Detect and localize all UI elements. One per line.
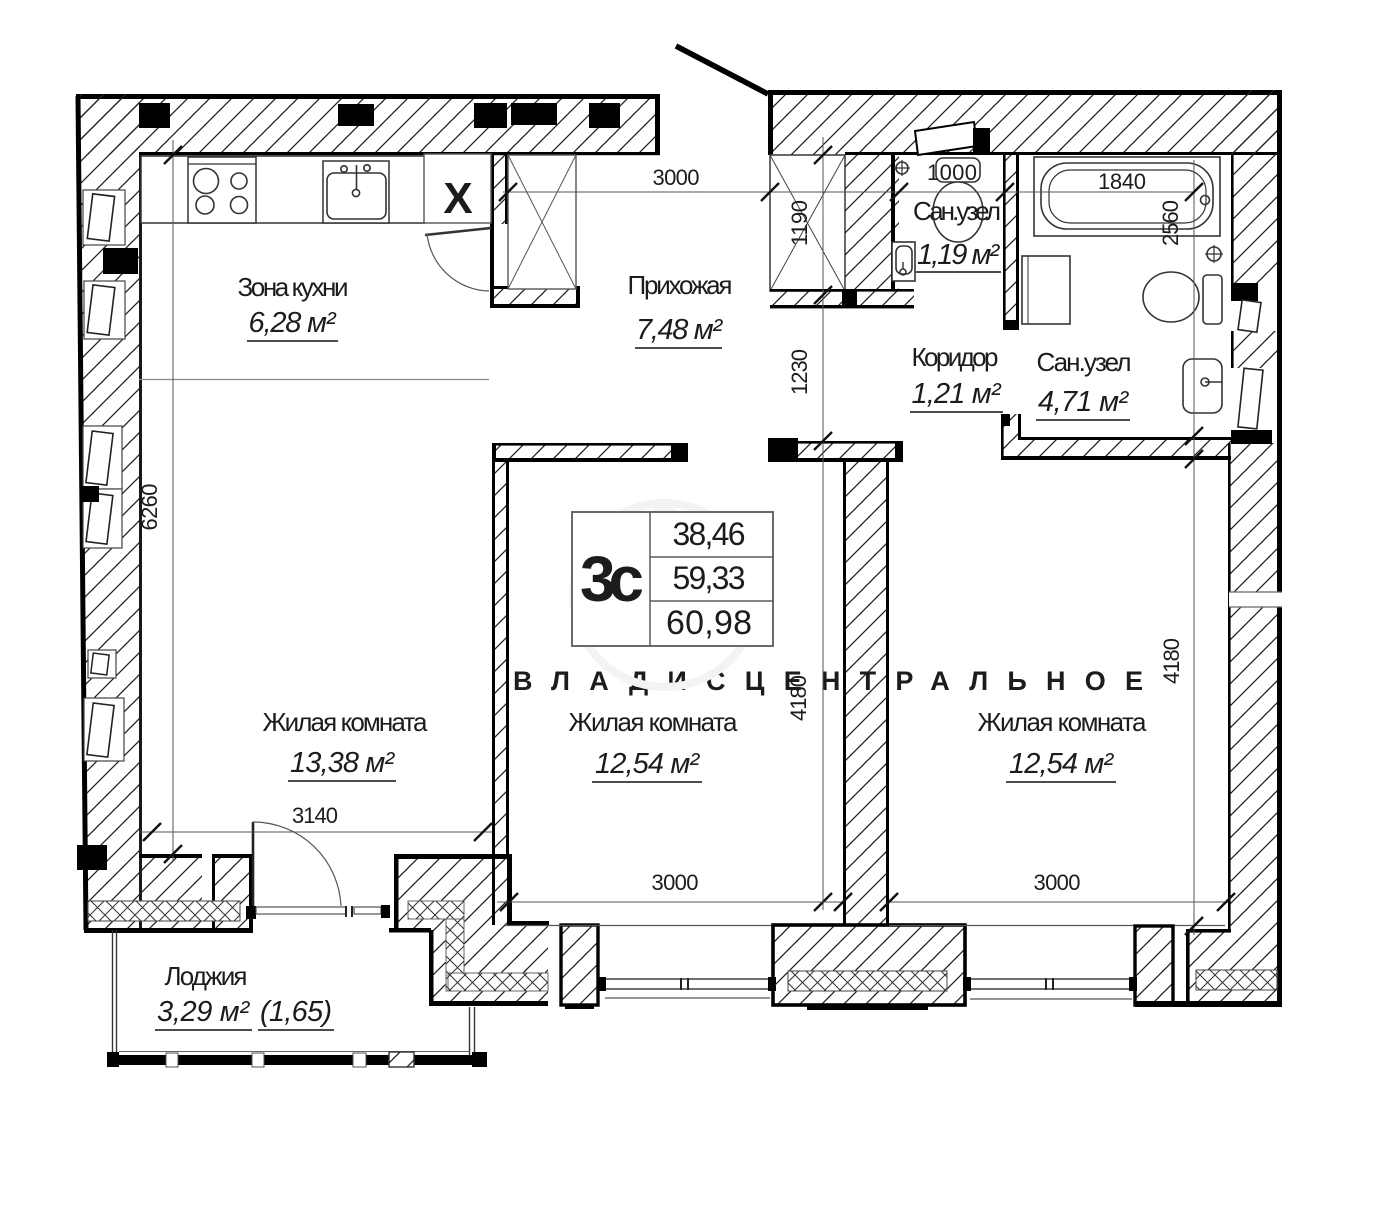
svg-text:4,71 м²: 4,71 м² [1038,386,1129,418]
svg-text:1230: 1230 [787,349,812,395]
svg-text:Прихожая: Прихожая [628,270,733,300]
svg-text:3140: 3140 [292,803,338,828]
svg-text:1,19 м²: 1,19 м² [917,239,1000,271]
svg-text:3000: 3000 [653,165,700,190]
svg-text:2560: 2560 [1158,200,1183,246]
svg-text:Жилая комната: Жилая комната [569,707,739,737]
svg-text:1190: 1190 [787,200,812,246]
svg-text:Сан.узел: Сан.узел [913,196,1001,226]
svg-text:(1,65): (1,65) [260,996,332,1028]
svg-text:7,48 м²: 7,48 м² [636,314,723,346]
svg-text:Коридор: Коридор [912,342,999,372]
svg-text:3000: 3000 [1034,870,1081,895]
svg-text:3,29 м²: 3,29 м² [157,996,250,1028]
svg-text:12,54 м²: 12,54 м² [595,748,700,780]
svg-text:1,21 м²: 1,21 м² [912,378,1002,410]
svg-text:6,28 м²: 6,28 м² [249,307,337,339]
svg-text:X: X [443,174,472,223]
svg-text:Жилая комната: Жилая комната [978,707,1148,737]
svg-text:4180: 4180 [1159,638,1184,684]
svg-text:59,33: 59,33 [673,560,746,596]
svg-text:6260: 6260 [137,484,162,531]
svg-text:1840: 1840 [1098,169,1146,194]
svg-text:3с: 3с [580,543,644,615]
svg-text:60,98: 60,98 [666,604,752,642]
svg-text:Сан.узел: Сан.узел [1037,347,1132,377]
svg-text:38,46: 38,46 [673,516,746,552]
svg-text:4180: 4180 [786,675,811,721]
svg-text:Жилая комната: Жилая комната [263,707,429,737]
svg-text:12,54 м²: 12,54 м² [1009,748,1114,780]
svg-text:1000: 1000 [927,160,977,185]
svg-text:3000: 3000 [652,870,699,895]
svg-text:13,38 м²: 13,38 м² [290,747,395,779]
svg-text:Лоджия: Лоджия [165,961,248,991]
svg-text:Зона кухни: Зона кухни [238,272,349,302]
